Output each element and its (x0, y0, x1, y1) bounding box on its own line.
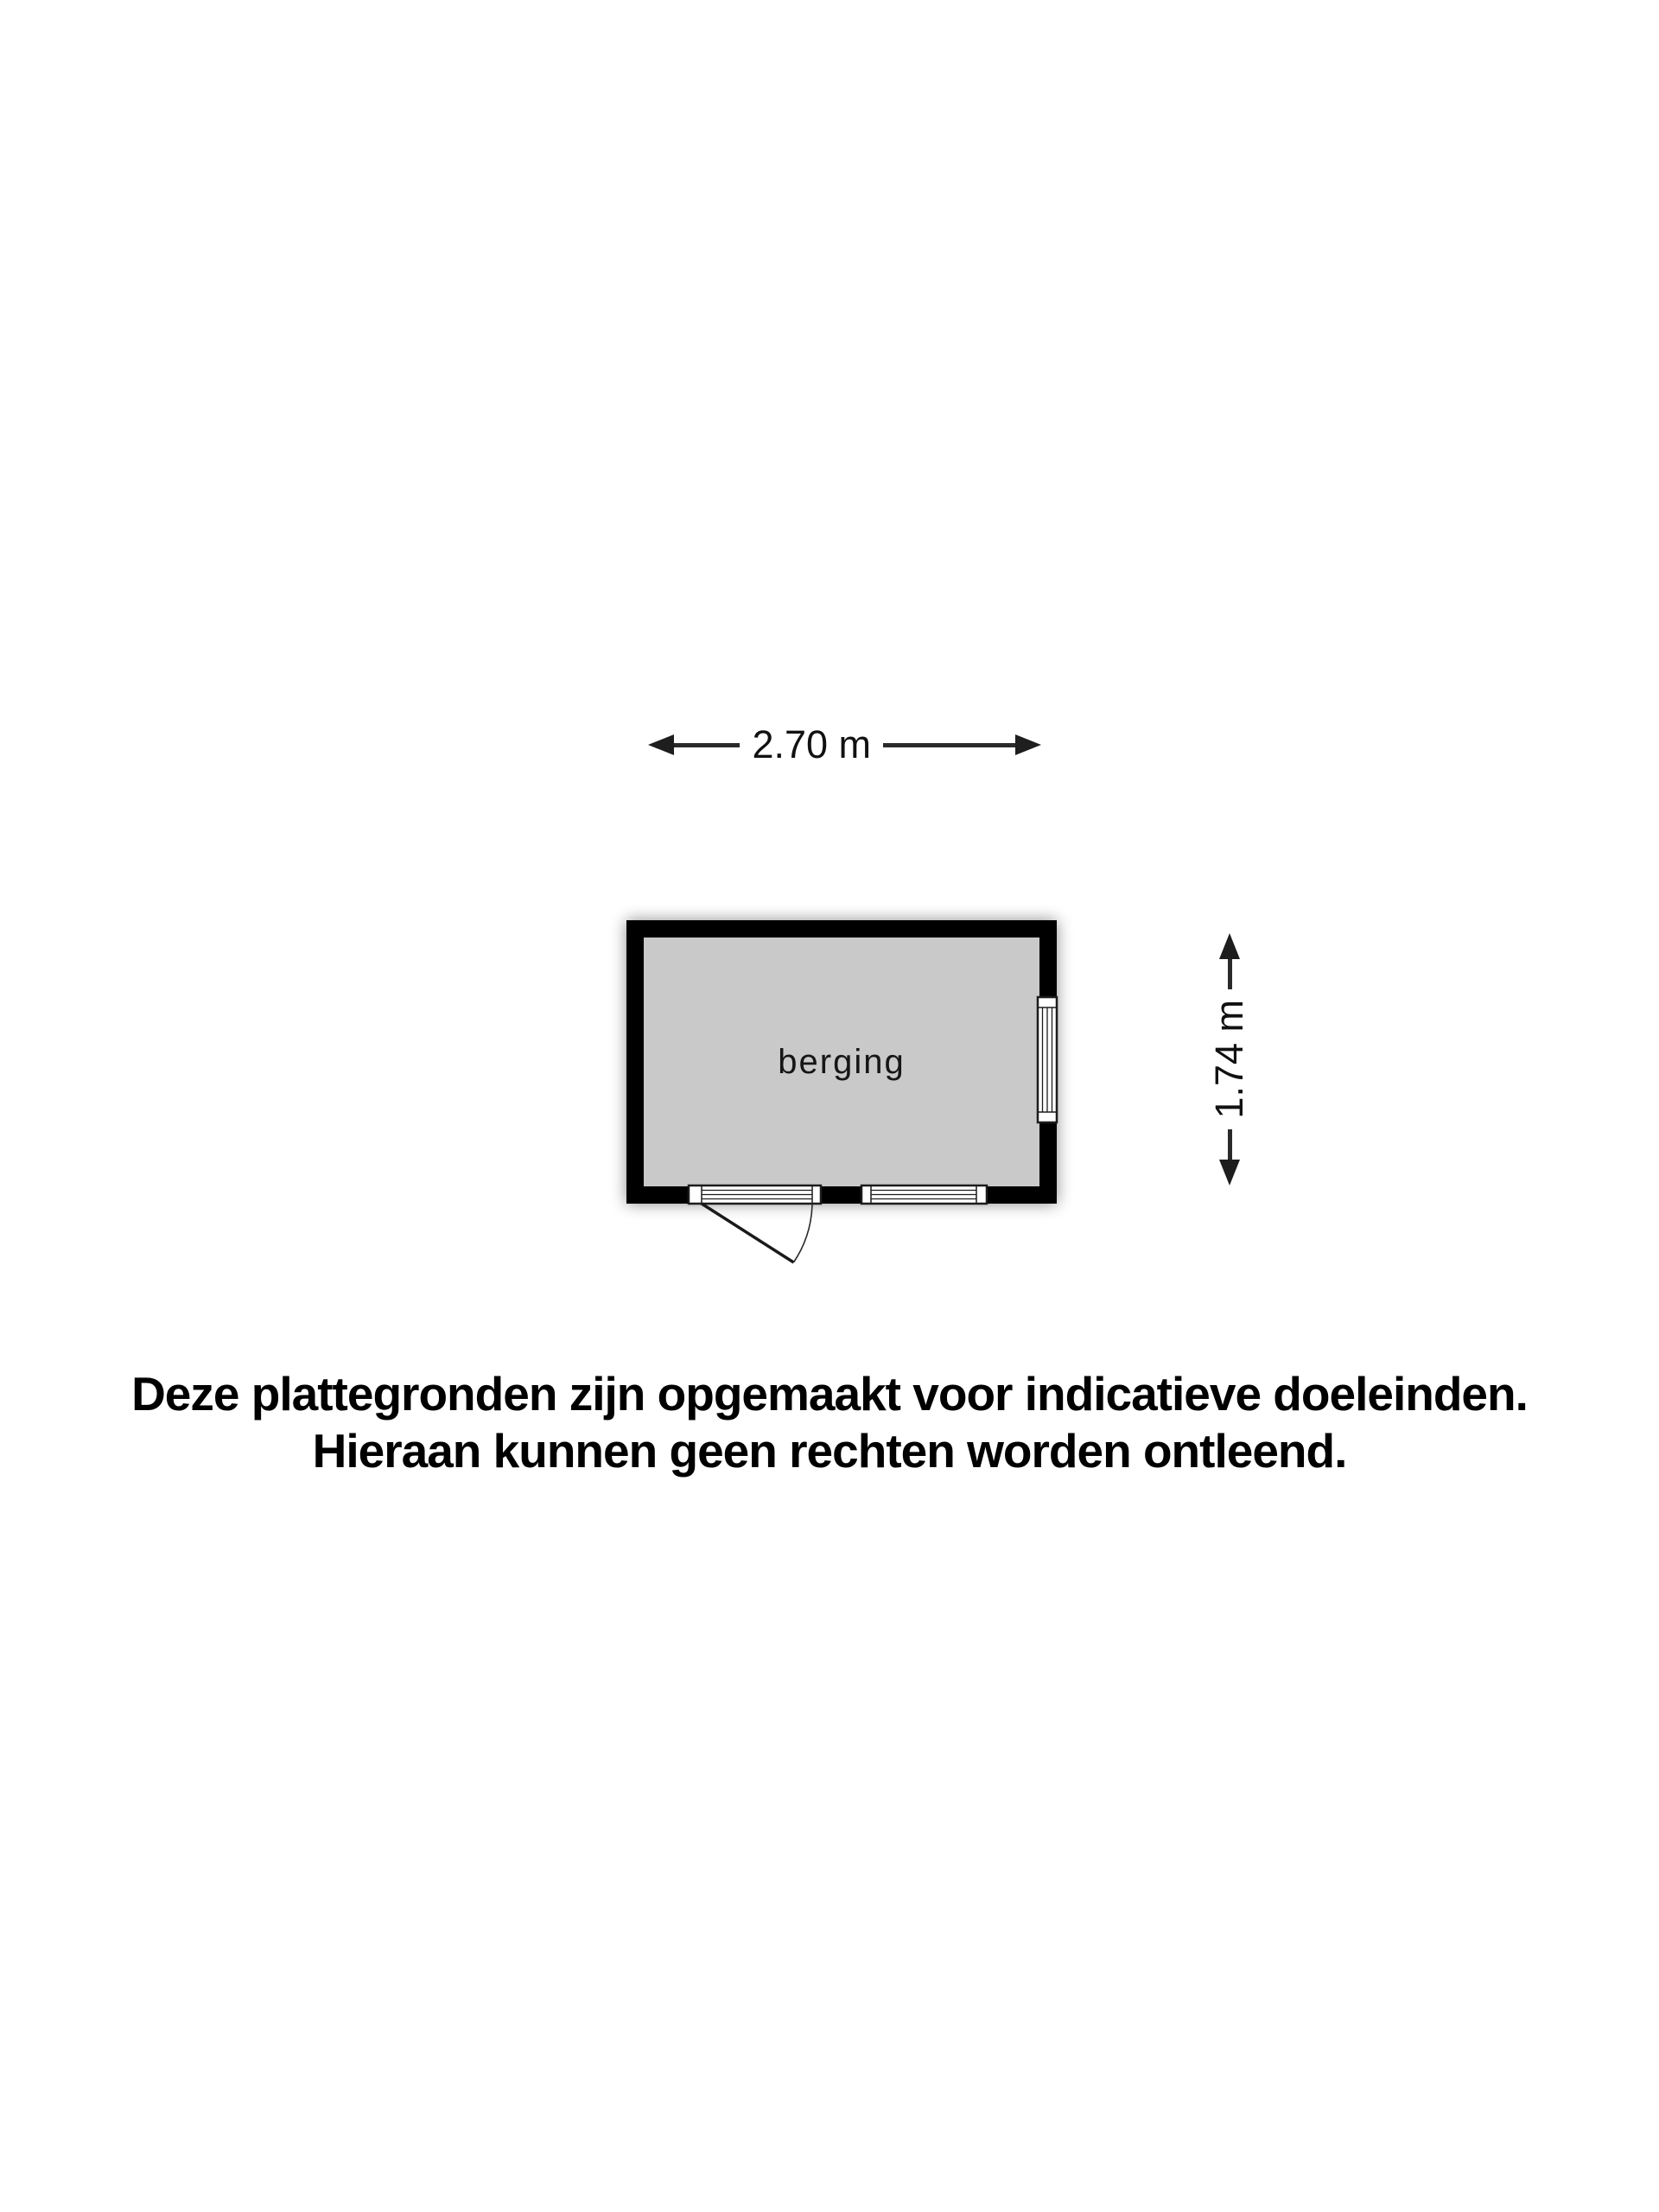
dimension-line (674, 743, 740, 747)
arrow-up-icon (1219, 933, 1240, 959)
dimension-line (883, 743, 1015, 747)
room-label-box: berging (644, 938, 1039, 1186)
door-panel-bottom (689, 1185, 821, 1204)
window-bottom (861, 1185, 987, 1204)
disclaimer: Deze plattegronden zijn opgemaakt voor i… (0, 1365, 1659, 1479)
width-dimension: 2.70 m (648, 727, 1041, 763)
disclaimer-line-1: Deze plattegronden zijn opgemaakt voor i… (0, 1365, 1659, 1422)
disclaimer-line-2: Hieraan kunnen geen rechten worden ontle… (0, 1422, 1659, 1479)
floorplan-page: berging 2.70 m 1.74 m Deze plattegronden… (0, 0, 1659, 2212)
dimension-line (1228, 1129, 1232, 1160)
arrow-down-icon (1219, 1160, 1240, 1185)
arrow-left-icon (648, 734, 674, 755)
height-dimension-label: 1.74 m (1207, 1000, 1252, 1119)
width-dimension-label: 2.70 m (752, 722, 871, 767)
height-dimension: 1.74 m (1209, 933, 1250, 1185)
room-label: berging (778, 1043, 905, 1082)
door-leaf (702, 1204, 794, 1262)
door-swing-arc (794, 1204, 813, 1262)
window-right (1038, 997, 1057, 1122)
arrow-right-icon (1015, 734, 1041, 755)
dimension-line (1228, 959, 1232, 989)
